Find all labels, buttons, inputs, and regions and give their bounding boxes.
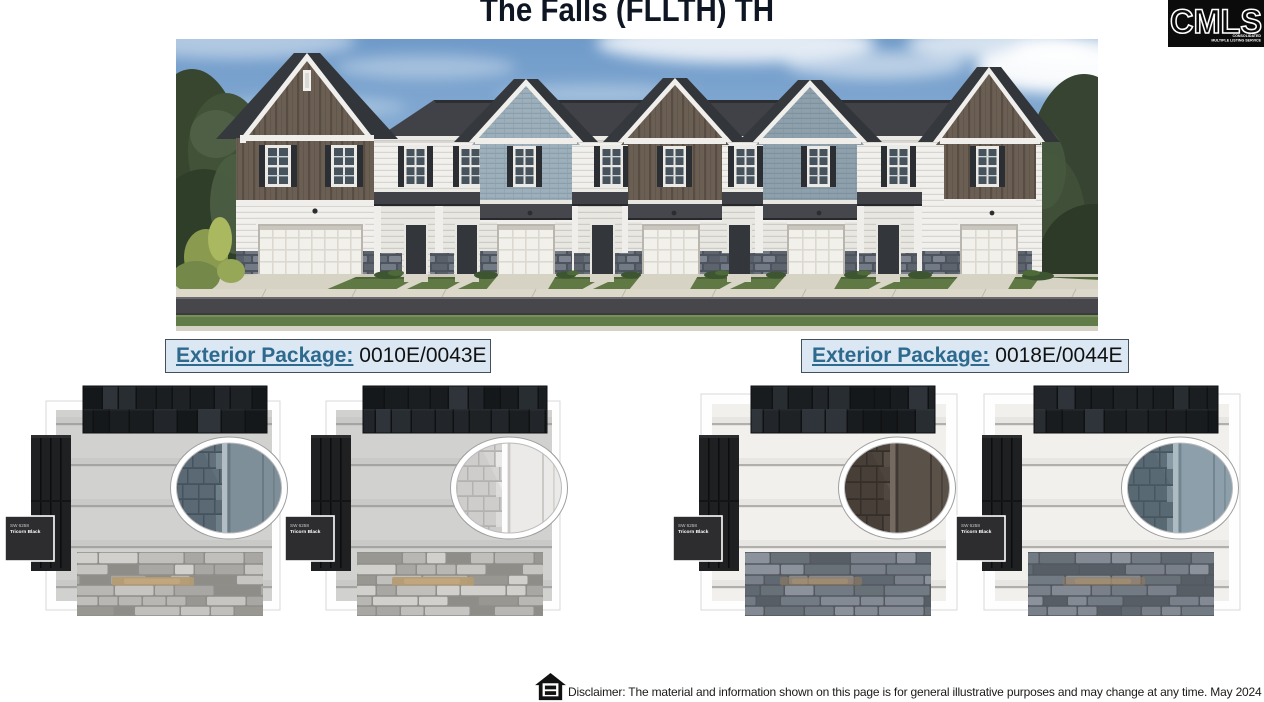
svg-text:CONSOLIDATED: CONSOLIDATED: [1233, 34, 1262, 38]
svg-text:SW 6258: SW 6258: [10, 523, 29, 528]
svg-text:Tricorn Black: Tricorn Black: [10, 529, 41, 535]
svg-text:SW 6258: SW 6258: [961, 523, 980, 528]
svg-text:SW 6258: SW 6258: [678, 523, 697, 528]
svg-text:Tricorn Black: Tricorn Black: [678, 529, 709, 535]
svg-text:MULTIPLE LISTING SERVICE: MULTIPLE LISTING SERVICE: [1211, 39, 1261, 43]
svg-text:SW 6258: SW 6258: [290, 523, 309, 528]
svg-text:Tricorn Black: Tricorn Black: [961, 529, 992, 535]
svg-text:Tricorn Black: Tricorn Black: [290, 529, 321, 535]
